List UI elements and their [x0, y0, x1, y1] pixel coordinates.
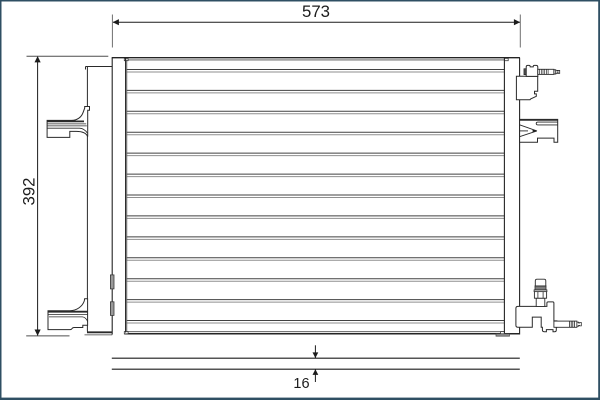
svg-text:16: 16 — [293, 376, 309, 392]
svg-text:392: 392 — [19, 178, 38, 206]
svg-text:573: 573 — [302, 2, 330, 21]
